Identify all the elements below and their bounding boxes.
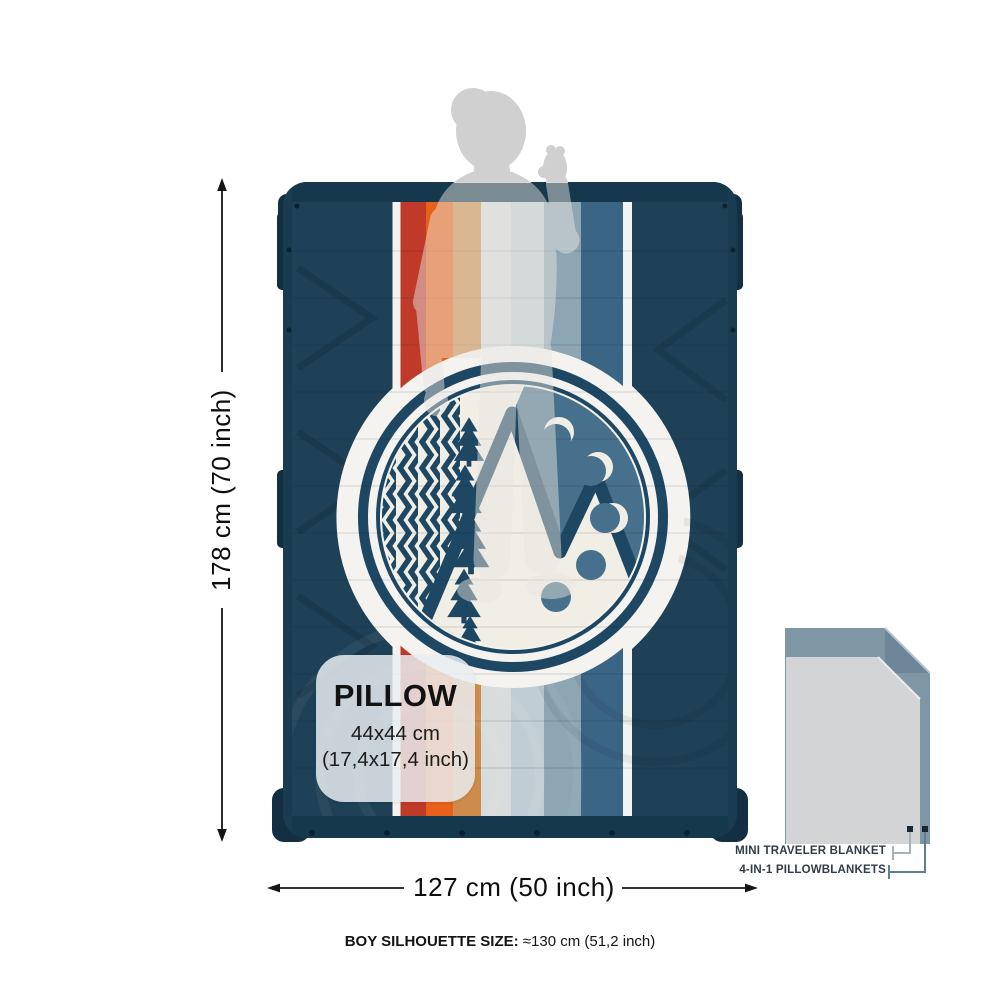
silhouette-size-note: BOY SILHOUETTE SIZE: ≈130 cm (51,2 inch) (0, 933, 1000, 950)
product-dimension-diagram: 178 cm (70 inch) 127 cm (50 inch) PILLOW… (0, 0, 1000, 1000)
left-binding (283, 182, 292, 838)
pillow-size-cm: 44x44 cm (316, 721, 475, 747)
pillow-title: PILLOW (316, 678, 475, 714)
mini-blanket-front (786, 657, 920, 844)
bottom-binding (283, 816, 737, 838)
right-binding (728, 182, 737, 838)
legend-label-mini-traveler: MINI TRAVELER BLANKET (735, 845, 886, 857)
pillowblanket-diagram (785, 628, 930, 879)
legend-dot-2 (922, 826, 928, 832)
height-dimension-label: 178 cm (70 inch) (206, 360, 238, 620)
silhouette-size-note-value: ≈130 cm (51,2 inch) (519, 933, 656, 950)
silhouette-size-note-label: BOY SILHOUETTE SIZE: (345, 933, 519, 950)
legend-label-4in1: 4-IN-1 PILLOWBLANKETS (739, 864, 886, 876)
pillow-size-inch: (17,4x17,4 inch) (316, 747, 475, 773)
pillow-size-badge: PILLOW 44x44 cm (17,4x17,4 inch) (316, 655, 475, 802)
width-dimension-label: 127 cm (50 inch) (404, 872, 624, 904)
legend-dot-1 (907, 826, 913, 832)
